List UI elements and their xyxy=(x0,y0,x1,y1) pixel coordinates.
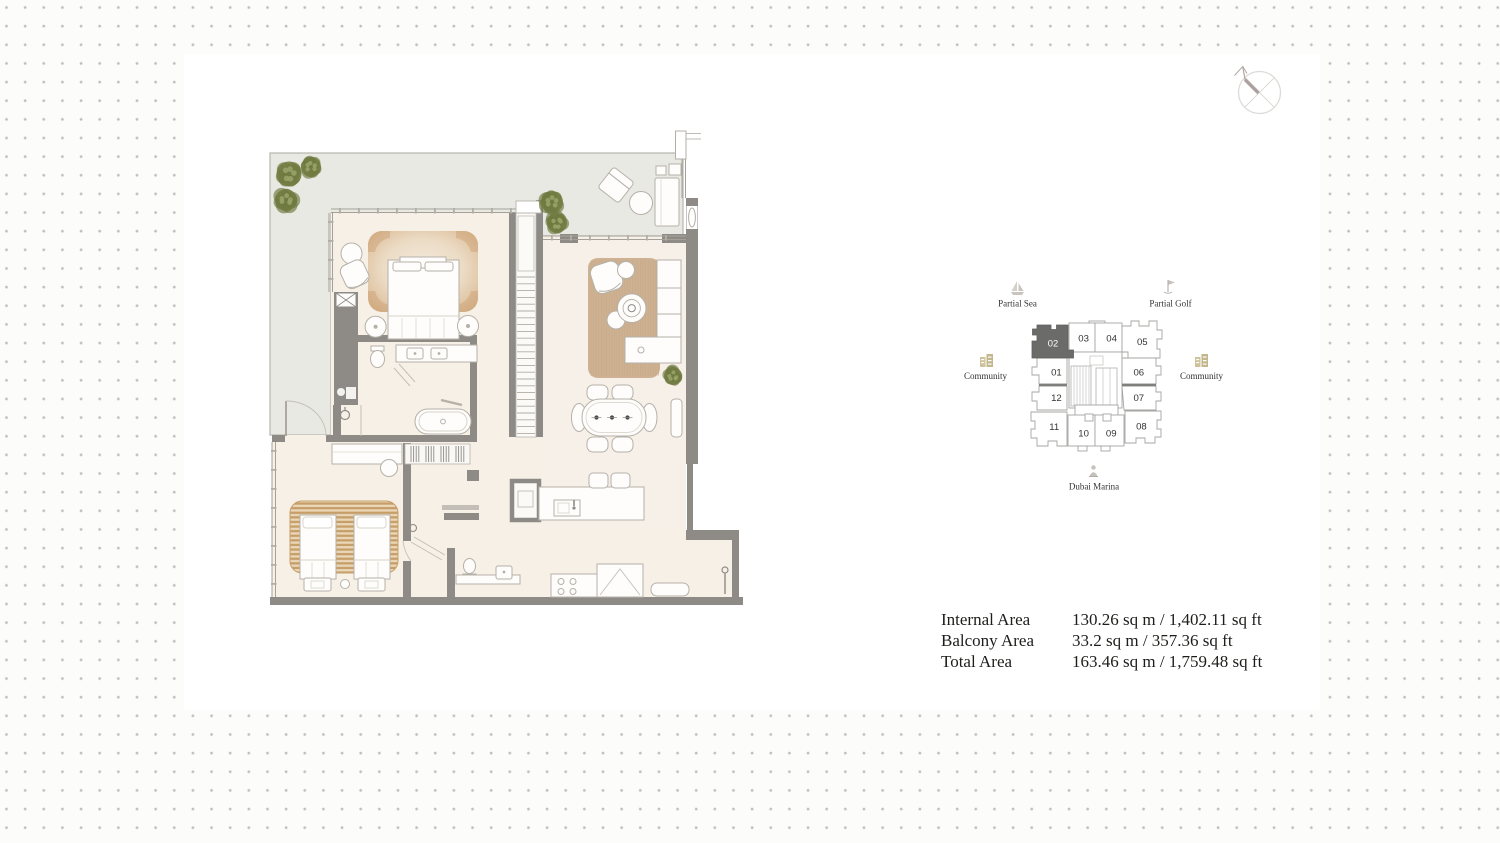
svg-text:06: 06 xyxy=(1133,367,1144,378)
svg-text:11: 11 xyxy=(1049,422,1059,433)
svg-text:05: 05 xyxy=(1137,337,1148,348)
svg-text:08: 08 xyxy=(1136,422,1147,433)
svg-text:04: 04 xyxy=(1106,334,1117,345)
svg-text:07: 07 xyxy=(1133,393,1144,404)
svg-text:Community: Community xyxy=(964,371,1008,381)
svg-text:Community: Community xyxy=(1180,371,1224,381)
svg-text:Partial Sea: Partial Sea xyxy=(998,299,1037,309)
svg-text:10: 10 xyxy=(1078,429,1089,440)
svg-text:03: 03 xyxy=(1078,334,1089,345)
svg-text:Partial Golf: Partial Golf xyxy=(1149,299,1191,309)
svg-text:09: 09 xyxy=(1106,429,1117,440)
svg-text:Dubai Marina: Dubai Marina xyxy=(1069,482,1119,492)
svg-text:01: 01 xyxy=(1051,367,1062,378)
svg-text:12: 12 xyxy=(1051,393,1062,404)
svg-text:02: 02 xyxy=(1048,338,1058,349)
